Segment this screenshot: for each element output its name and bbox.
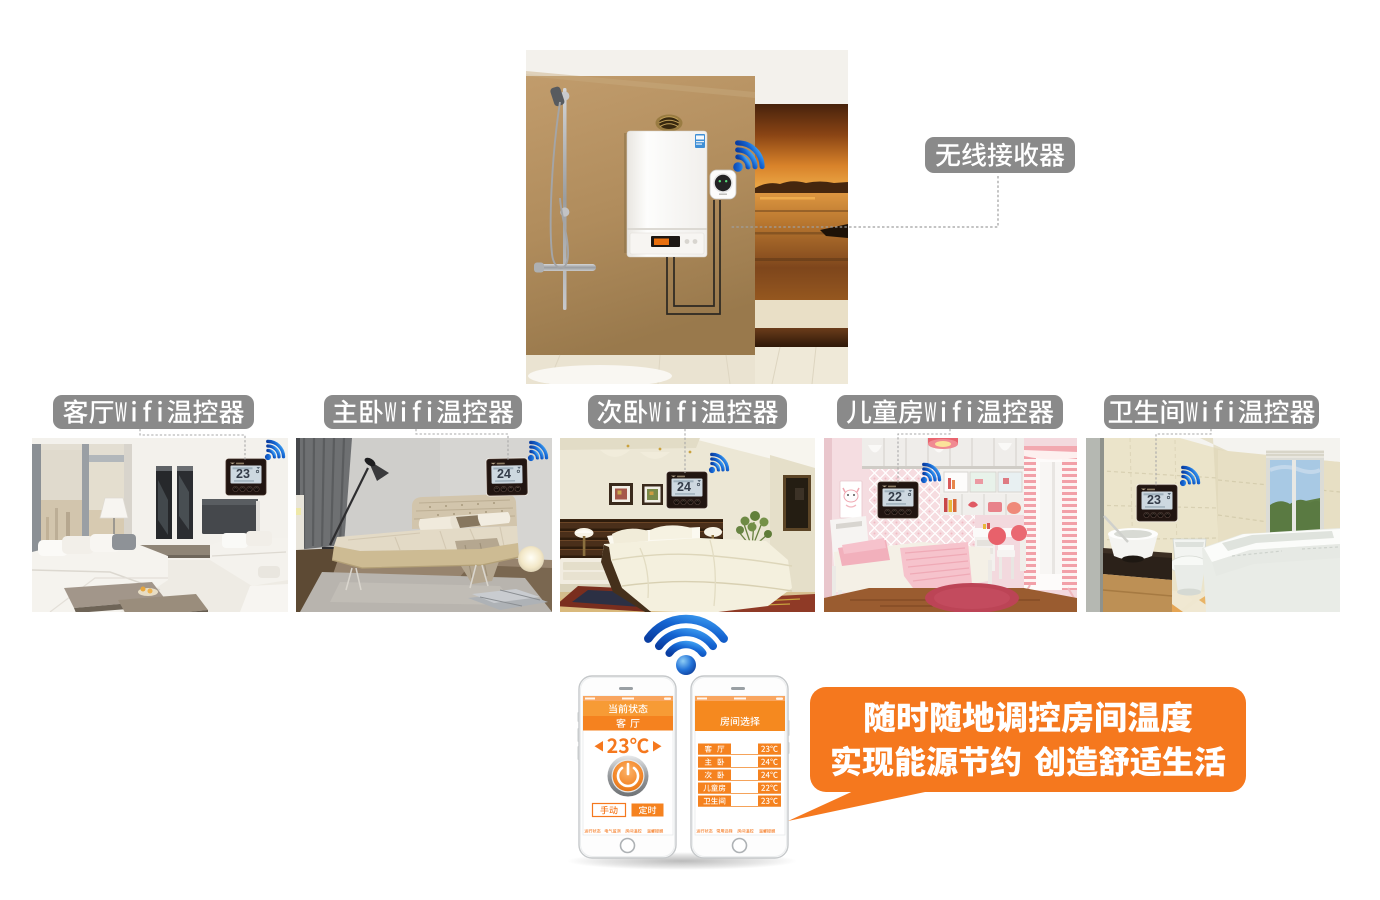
svg-text:22: 22 xyxy=(888,490,902,504)
svg-text:24: 24 xyxy=(677,480,691,494)
svg-text:24: 24 xyxy=(497,467,511,481)
svg-text:23: 23 xyxy=(1147,493,1161,507)
svg-text:23: 23 xyxy=(236,467,250,481)
